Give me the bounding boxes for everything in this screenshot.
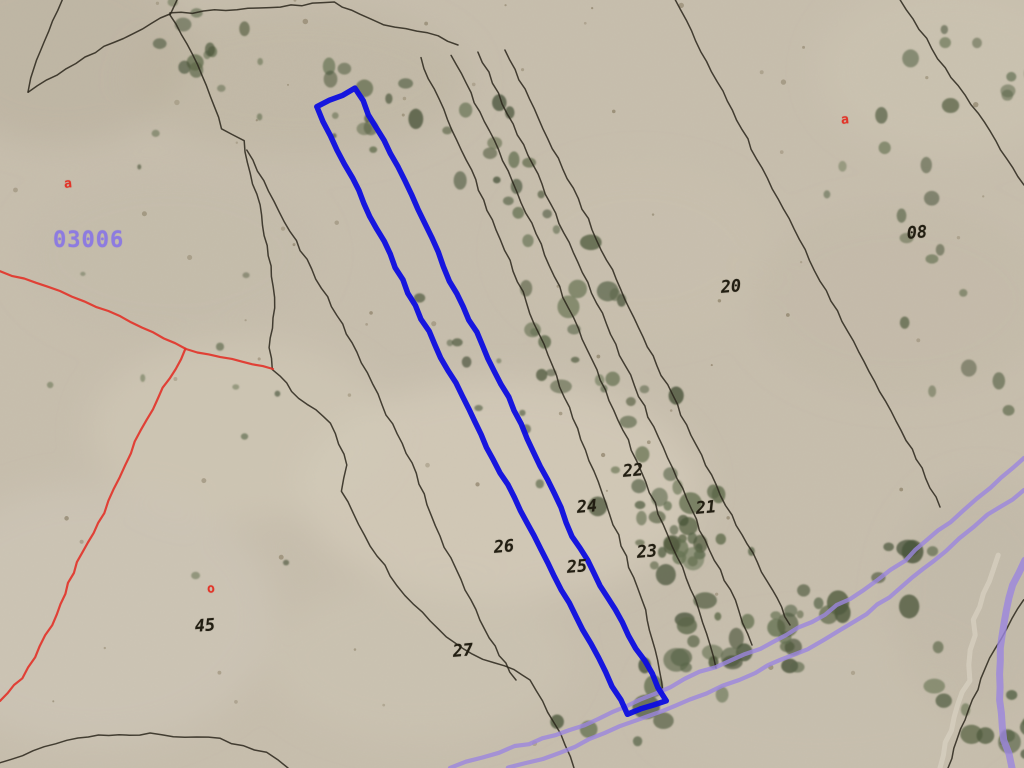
map-viewport[interactable]: 03006 a a o 08 20 22 21 24 23 26 25 27 4… [0,0,1024,768]
aerial-imagery-canvas [0,0,1024,768]
